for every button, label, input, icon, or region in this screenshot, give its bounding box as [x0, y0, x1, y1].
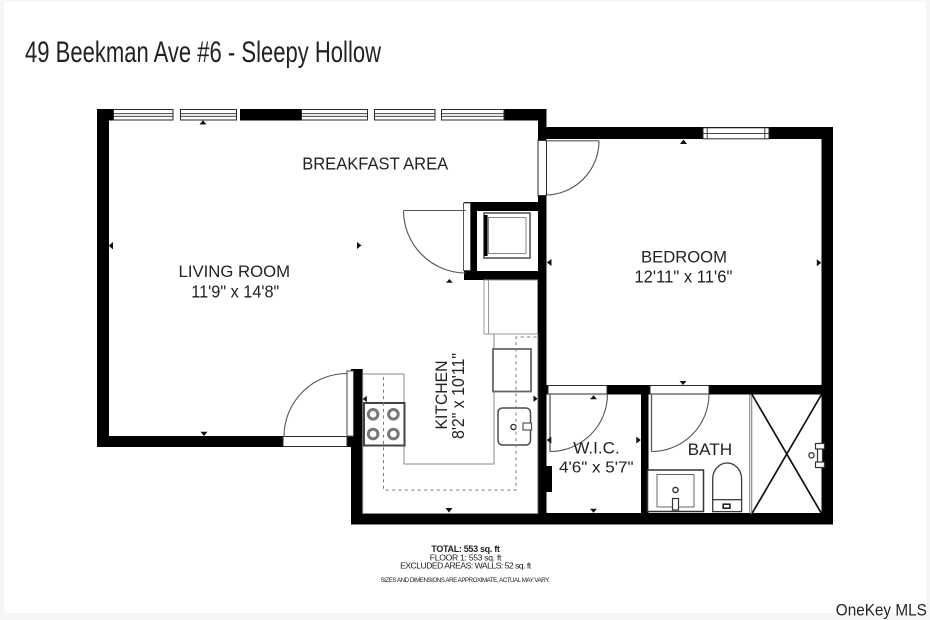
svg-text:LIVING ROOM: LIVING ROOM [179, 263, 291, 281]
svg-text:SIZES AND DIMENSIONS ARE APPRO: SIZES AND DIMENSIONS ARE APPROXIMATE, AC… [380, 577, 550, 584]
svg-text:8'2" x 10'11": 8'2" x 10'11" [448, 353, 468, 439]
svg-text:49 Beekman Ave #6 - Sleepy Hol: 49 Beekman Ave #6 - Sleepy Hollow [25, 36, 381, 69]
svg-text:BATH: BATH [688, 441, 733, 459]
svg-text:12'11" x 11'6": 12'11" x 11'6" [634, 266, 732, 286]
svg-text:EXCLUDED AREAS: WALLS: 52 sq.: EXCLUDED AREAS: WALLS: 52 sq. ft [400, 561, 532, 571]
svg-text:W.I.C.: W.I.C. [573, 440, 620, 458]
svg-text:11'9" x 14'8": 11'9" x 14'8" [191, 281, 279, 301]
svg-text:4'6" x 5'7": 4'6" x 5'7" [559, 460, 634, 477]
svg-text:BEDROOM: BEDROOM [641, 249, 727, 267]
svg-text:BREAKFAST AREA: BREAKFAST AREA [302, 154, 448, 174]
svg-text:OneKey MLS: OneKey MLS [836, 601, 927, 619]
